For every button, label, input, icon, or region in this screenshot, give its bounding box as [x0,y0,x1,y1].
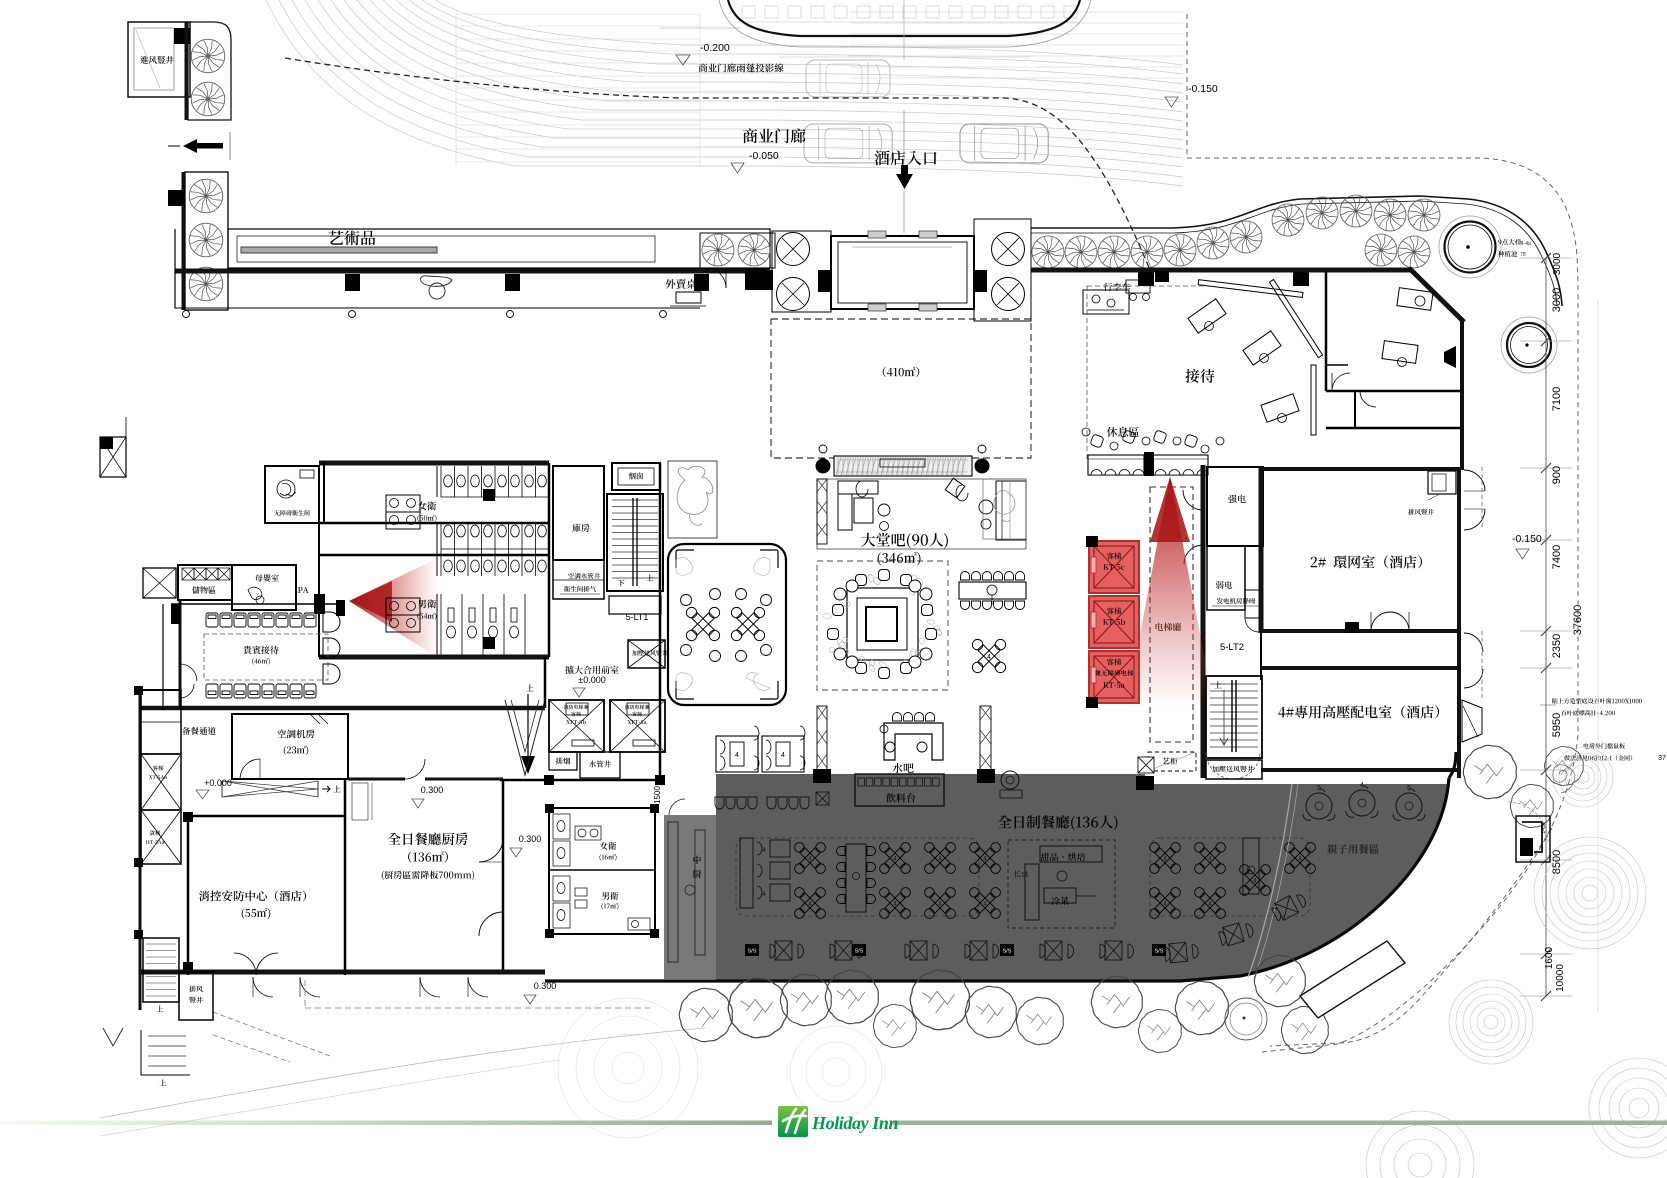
svg-text:0.300: 0.300 [519,834,542,844]
svg-text:-0.150: -0.150 [1512,533,1542,545]
svg-text:4: 4 [762,847,766,854]
svg-text:37600: 37600 [1572,605,1584,636]
svg-text:-0.200: -0.200 [700,42,730,54]
svg-text:5-LT1: 5-LT1 [626,612,649,622]
svg-text:5: 5 [1317,785,1321,792]
svg-text:+0.000: +0.000 [204,778,232,788]
svg-text:S/S: S/S [1003,949,1012,955]
svg-text:5950: 5950 [1551,713,1563,737]
svg-text:4: 4 [781,752,785,759]
svg-text:1450: 1450 [1541,822,1547,833]
svg-text:5-LT2: 5-LT2 [1220,642,1244,653]
svg-text:2350: 2350 [1551,634,1563,658]
svg-text:7100: 7100 [1551,387,1563,411]
svg-text:1600: 1600 [1544,946,1555,969]
svg-text:7400: 7400 [1551,545,1563,569]
svg-text:S/S: S/S [748,949,757,955]
svg-text:1500: 1500 [653,786,662,804]
svg-text:4: 4 [987,654,991,661]
svg-text:4: 4 [735,752,739,759]
svg-text:0.300: 0.300 [421,785,444,795]
svg-text:S/S: S/S [855,949,864,955]
svg-text:900: 900 [1551,466,1563,484]
svg-text:-0.150: -0.150 [1188,83,1218,95]
svg-text:37: 37 [1658,755,1666,762]
svg-text:S/S: S/S [1155,949,1164,955]
svg-text:4: 4 [1360,782,1364,789]
svg-text:3000: 3000 [1552,252,1563,275]
svg-text:-0.050: -0.050 [749,150,779,162]
svg-text:3000: 3000 [1551,288,1563,312]
svg-text:5: 5 [1407,785,1411,792]
svg-text:±0.000: ±0.000 [578,675,605,685]
svg-text:10000: 10000 [1555,964,1566,992]
svg-text:4: 4 [762,891,766,898]
svg-text:Holiday Inn: Holiday Inn [811,1113,899,1133]
